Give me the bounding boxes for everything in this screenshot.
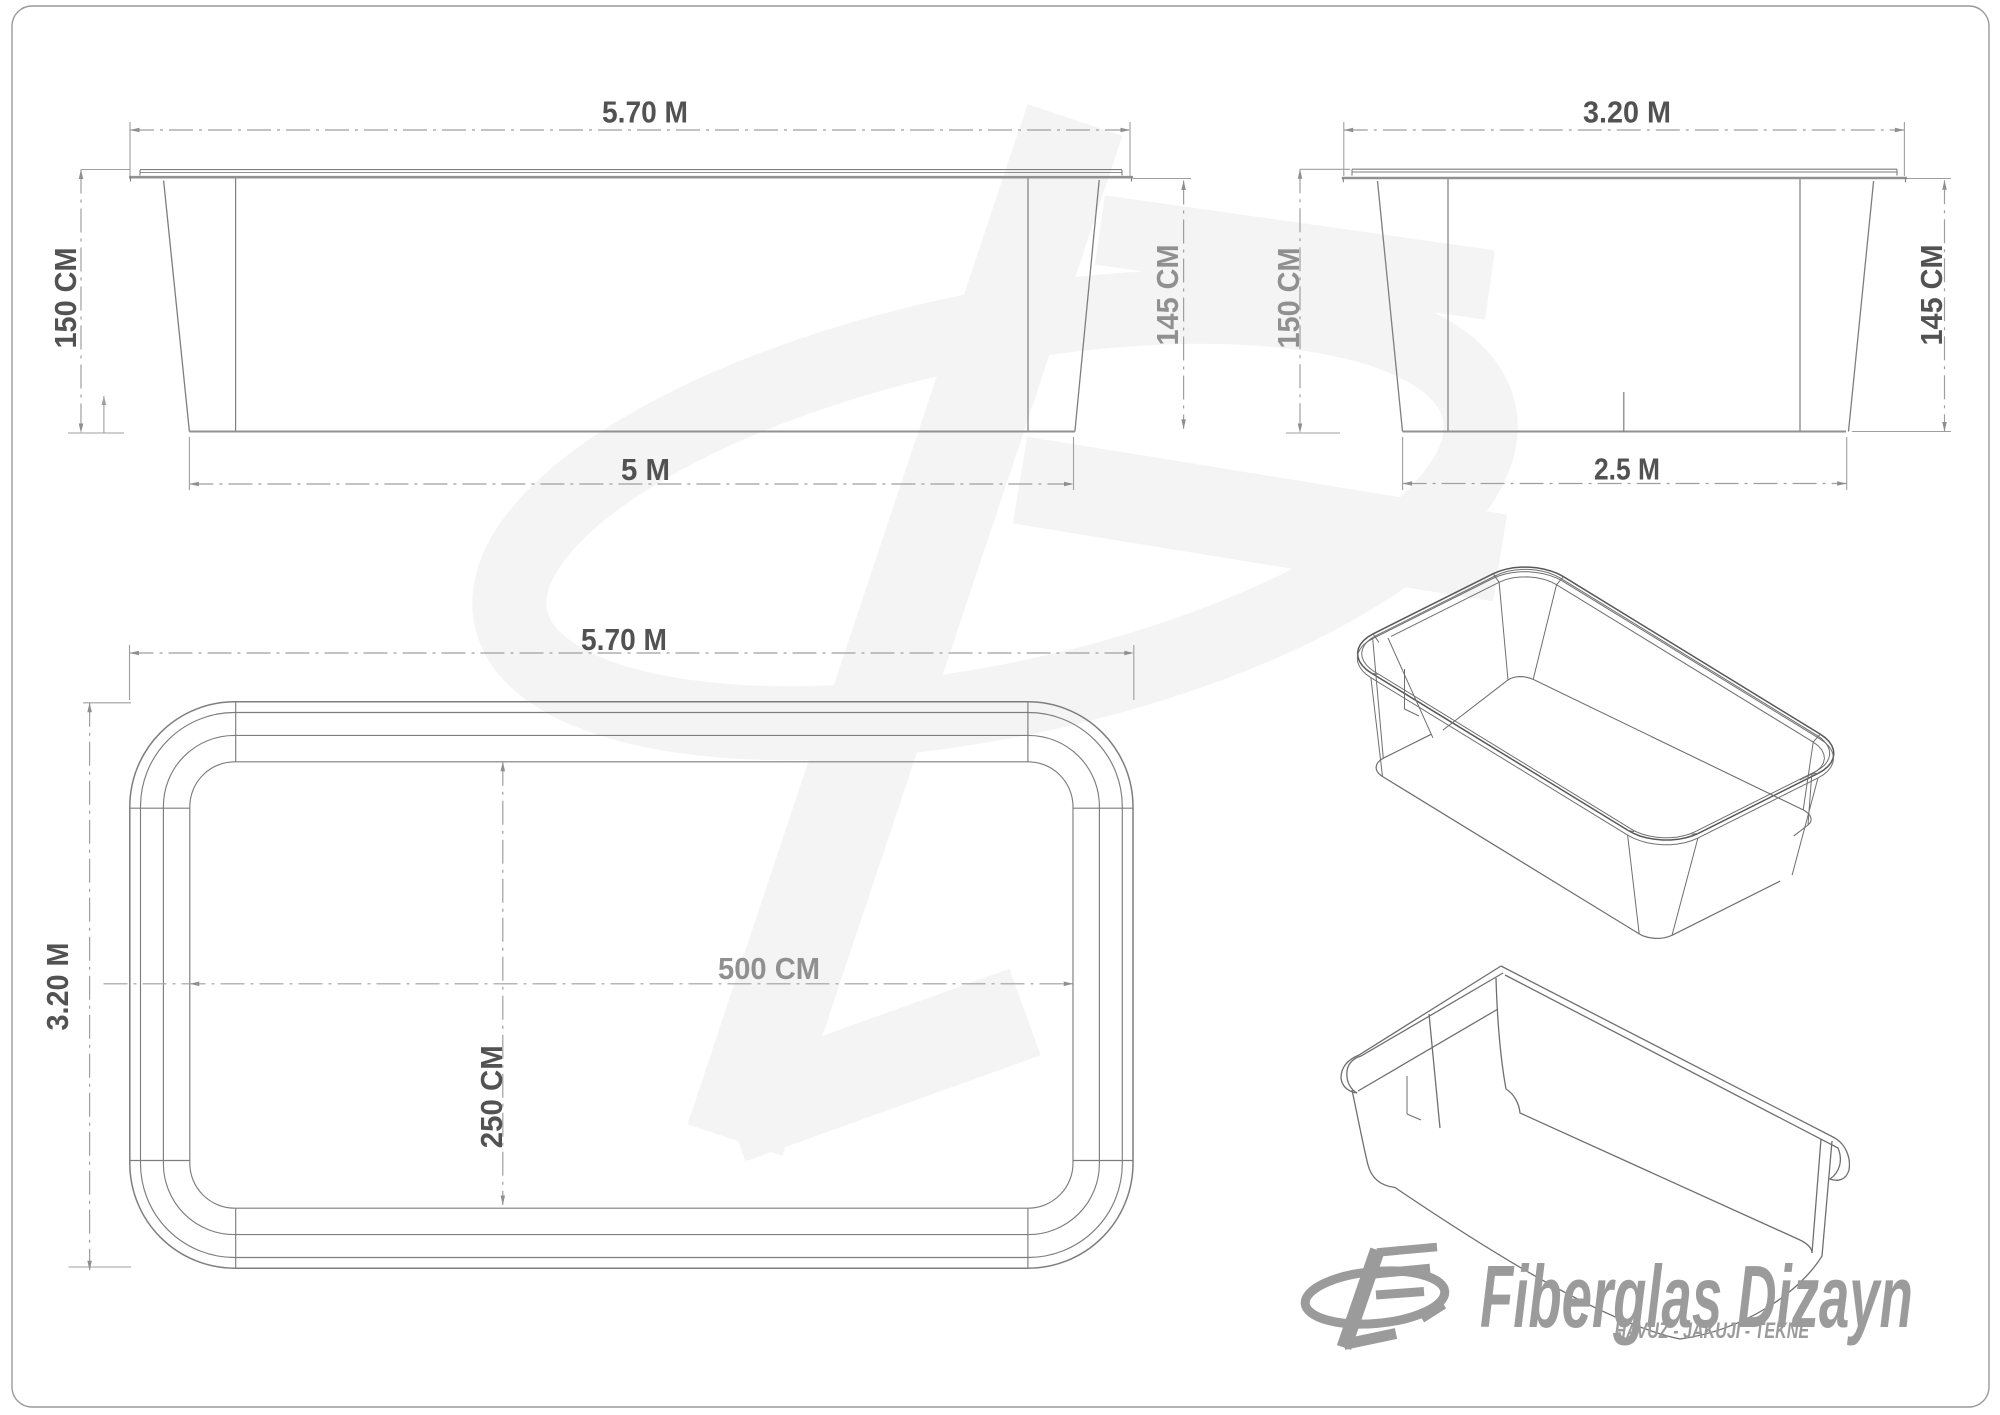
svg-text:5.70 M: 5.70 M [602, 95, 688, 130]
svg-text:150 CM: 150 CM [1271, 248, 1306, 349]
svg-text:HAVUZ - JAKUJI - TEKNE: HAVUZ - JAKUJI - TEKNE [1615, 1320, 1811, 1344]
svg-text:150 CM: 150 CM [48, 248, 83, 349]
svg-text:5.70 M: 5.70 M [581, 622, 667, 657]
svg-text:145 CM: 145 CM [1914, 245, 1949, 346]
svg-text:2.5 M: 2.5 M [1594, 452, 1660, 487]
svg-text:3.20 M: 3.20 M [40, 943, 75, 1031]
svg-text:3.20 M: 3.20 M [1583, 95, 1671, 130]
svg-text:500 CM: 500 CM [718, 951, 820, 986]
svg-text:250 CM: 250 CM [474, 1045, 509, 1148]
svg-text:5 M: 5 M [621, 452, 670, 487]
svg-text:145 CM: 145 CM [1150, 245, 1185, 346]
